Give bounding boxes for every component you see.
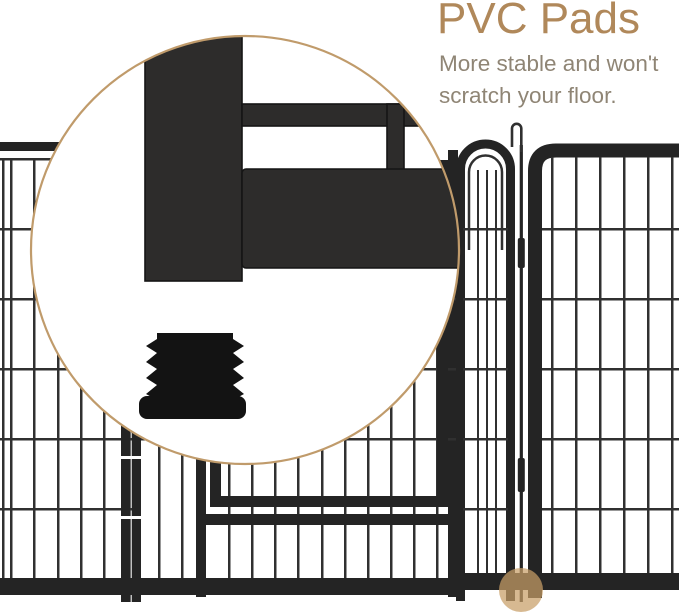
subtitle-line-1: More stable and won't — [439, 48, 677, 80]
magnifier-callout — [31, 24, 468, 464]
page-title: PVC Pads — [437, 0, 677, 42]
product-image: PVC Pads More stable and won't scratch y… — [0, 0, 679, 616]
pvc-pad-plug — [139, 333, 246, 419]
fence-panel-arched — [461, 144, 511, 601]
page-subtitle: More stable and won't scratch your floor… — [439, 48, 677, 112]
foot-highlight-dot — [499, 568, 543, 612]
fence-panel-right — [535, 151, 679, 599]
subtitle-line-2: scratch your floor. — [439, 80, 677, 112]
fence-bottom-bar — [0, 573, 679, 598]
